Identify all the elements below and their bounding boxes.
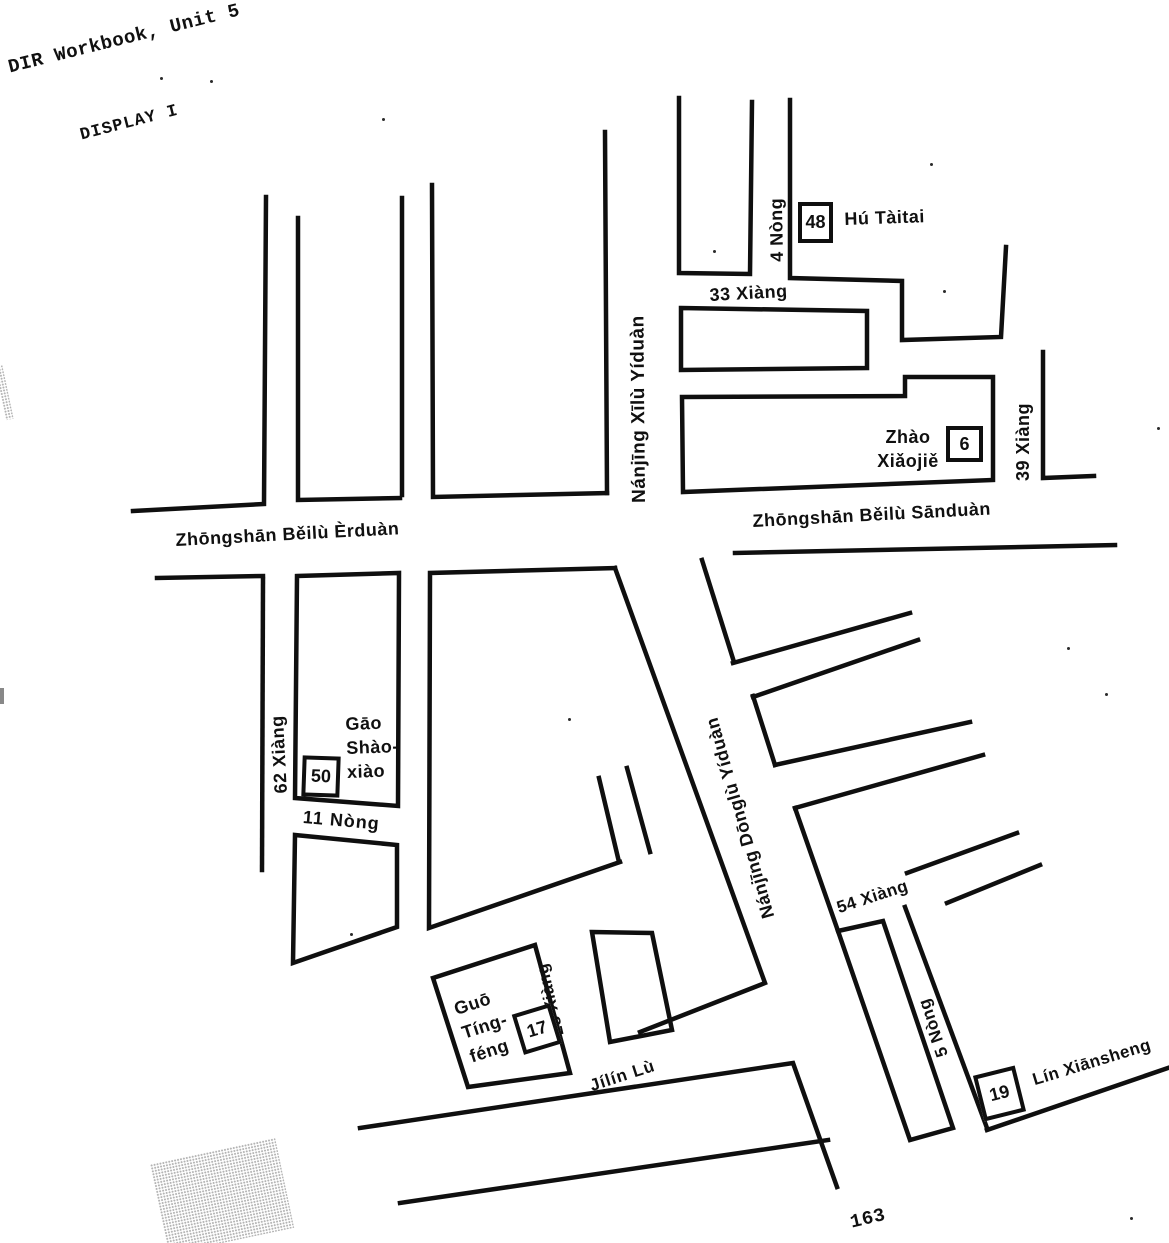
side-street-3-north bbox=[907, 833, 1017, 873]
street-line-donglu-east-3 bbox=[795, 808, 838, 931]
street-line-donglu-east-1 bbox=[702, 560, 734, 662]
street-map-line-art bbox=[0, 0, 1169, 1243]
marker-number-48: 48 bbox=[805, 212, 825, 233]
marker-box-50: 50 bbox=[301, 755, 340, 797]
noise-dot bbox=[568, 718, 571, 721]
street-line-62xiang-west bbox=[262, 580, 263, 870]
resident-name-line: Zhào bbox=[886, 427, 931, 447]
noise-dot bbox=[160, 77, 163, 80]
building-central-block bbox=[429, 568, 620, 928]
resident-name-line: Xiǎojiě bbox=[877, 451, 939, 471]
noise-dot bbox=[382, 118, 385, 121]
street-label-33-xiang: 33 Xiàng bbox=[709, 280, 788, 306]
street-stub-a2 bbox=[627, 768, 650, 852]
block-line-top-center bbox=[679, 98, 752, 274]
noise-dot bbox=[1130, 1217, 1133, 1220]
marker-number-50: 50 bbox=[311, 766, 332, 788]
block-line-topleft-2 bbox=[432, 185, 607, 497]
noise-dot bbox=[943, 290, 946, 293]
street-label-39-xiang: 39 Xiàng bbox=[1012, 403, 1034, 481]
street-line-donglu-east-2 bbox=[753, 696, 775, 765]
noise-dot bbox=[1157, 427, 1160, 430]
street-line-jilin-south bbox=[400, 1140, 828, 1203]
street-line-erduan-north-west bbox=[133, 197, 266, 511]
street-line-sanduan bbox=[735, 545, 1115, 553]
street-line-nanjing-xilu-west bbox=[605, 132, 607, 493]
street-line-39xiang bbox=[1043, 352, 1094, 478]
toner-mark-left-edge bbox=[0, 688, 4, 704]
street-label-62-xiang: 62 Xiàng bbox=[266, 715, 292, 794]
resident-name-line: Gāo bbox=[345, 713, 382, 734]
building-rect-below-33xiang bbox=[681, 308, 867, 370]
street-label-nanjing-xilu: Nánjīng Xīlù Yíduàn bbox=[627, 315, 651, 503]
resident-label-zhao-xiaojie: Zhào Xiǎojiě bbox=[872, 425, 944, 473]
side-street-2-south bbox=[795, 755, 983, 808]
resident-name-line: xiào bbox=[347, 761, 386, 782]
side-street-3-south bbox=[947, 865, 1040, 903]
noise-dot bbox=[1067, 647, 1070, 650]
noise-dot bbox=[350, 933, 353, 936]
workbook-scan-page: DIR Workbook, Unit 5 DISPLAY I 4 Nòng 33… bbox=[0, 0, 1169, 1243]
block-line-topleft-1 bbox=[298, 218, 400, 500]
noise-dot bbox=[1105, 693, 1108, 696]
street-line-erduan-south-west bbox=[157, 576, 263, 578]
side-street-2-north bbox=[775, 722, 970, 765]
resident-label-hu-taitai: Hú Tàitai bbox=[844, 205, 925, 230]
marker-box-48: 48 bbox=[798, 202, 833, 243]
noise-dot bbox=[713, 250, 716, 253]
marker-number-19: 19 bbox=[987, 1081, 1012, 1106]
street-stub-a1 bbox=[599, 778, 619, 862]
resident-label-gao-shaoxiao: Gāo Shào- xiào bbox=[345, 710, 400, 784]
street-label-4-nong: 4 Nòng bbox=[765, 198, 788, 262]
marker-box-6: 6 bbox=[946, 426, 983, 462]
noise-dot bbox=[210, 80, 213, 83]
marker-number-6: 6 bbox=[959, 434, 969, 455]
side-street-1-north bbox=[733, 613, 910, 663]
marker-number-17: 17 bbox=[524, 1016, 549, 1042]
noise-dot bbox=[930, 163, 933, 166]
resident-name-line: Shào- bbox=[346, 736, 399, 758]
building-11nong-block bbox=[293, 835, 397, 963]
